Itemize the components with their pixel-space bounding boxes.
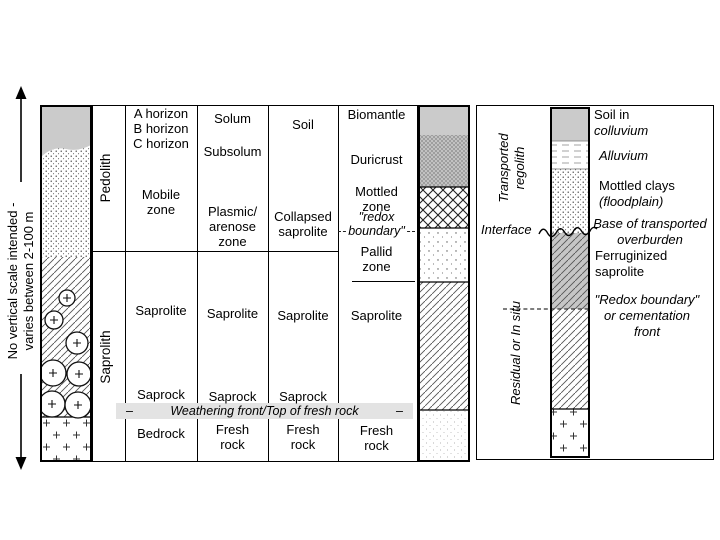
cell-mobile-zone: Mobile zone — [125, 187, 197, 217]
cell-fresh-rock-4: Fresh rock — [338, 423, 415, 453]
weathering-profile-table: Pedolith Saprolith A horizon B horizon C… — [40, 105, 470, 462]
residual-in-situ-label: Residual or In situ — [508, 278, 524, 428]
a-horizon: A horizon — [125, 106, 197, 121]
scale-note-line1: No vertical scale intended - — [5, 176, 21, 386]
band-dash-right: – — [396, 404, 403, 418]
middle-strat-column-graphic — [418, 105, 470, 462]
cell-subsolum: Subsolum — [197, 144, 268, 159]
weathering-front-label: Weathering front/Top of fresh rock — [170, 404, 358, 418]
cell-duricrust: Duricrust — [338, 152, 415, 167]
label-mottled-clays: Mottled clays (floodplain) — [599, 178, 675, 210]
cell-collapsed-saprolite: Collapsed saprolite — [268, 209, 338, 239]
pedolith-saprolith-divider — [92, 251, 338, 252]
cell-bedrock: Bedrock — [125, 426, 197, 441]
cell-soil: Soil — [268, 117, 338, 132]
cell-plasmic-zone: Plasmic/ arenose zone — [197, 204, 268, 249]
cell-horizons: A horizon B horizon C horizon — [125, 106, 197, 151]
cell-fresh-rock-2: Fresh rock — [197, 422, 268, 452]
interface-label: Interface — [481, 222, 543, 238]
vertical-scale-note: No vertical scale intended - varies betw… — [5, 176, 37, 386]
cell-pallid-zone: Pallid zone — [338, 244, 415, 274]
transported-regolith-panel: Transported regolith Residual or In situ… — [476, 105, 714, 460]
scale-note-line2: varies between 2-100 m — [21, 176, 37, 386]
label-ferruginized-saprolite: Ferruginized saprolite — [595, 248, 667, 280]
band-dash-left: – — [126, 404, 133, 418]
left-strat-column-graphic — [40, 105, 92, 462]
phase-label-pedolith: Pedolith — [98, 128, 118, 228]
weathering-front-band: – Weathering front/Top of fresh rock – — [116, 403, 413, 419]
cell-biomantle: Biomantle — [338, 107, 415, 122]
label-redox-boundary-cementation: "Redox boundary" or cementation front — [585, 292, 709, 340]
cell-saprolite-1: Saprolite — [125, 303, 197, 318]
label-base-of-transported: Base of transported overburden — [587, 216, 713, 248]
label-soil-in-colluvium: Soil in colluvium — [594, 107, 648, 139]
cell-solum: Solum — [197, 111, 268, 126]
pallid-zone-underline — [352, 281, 415, 282]
label-alluvium: Alluvium — [599, 148, 648, 164]
cell-saprock-2: Saprock — [197, 389, 268, 404]
transported-regolith-label: Transported regolith — [496, 113, 528, 223]
cell-saprolite-3: Saprolite — [268, 308, 338, 323]
cell-saprock-3: Saprock — [268, 389, 338, 404]
cell-fresh-rock-3: Fresh rock — [268, 422, 338, 452]
cell-redox-boundary: "redox boundary" — [338, 211, 415, 238]
cell-saprolite-2: Saprolite — [197, 306, 268, 321]
c-horizon: C horizon — [125, 136, 197, 151]
regolith-terminology-diagram: No vertical scale intended - varies betw… — [0, 0, 720, 540]
b-horizon: B horizon — [125, 121, 197, 136]
phase-label-saprolith: Saprolith — [98, 307, 118, 407]
cell-saprolite-4: Saprolite — [338, 308, 415, 323]
cell-saprock-1: Saprock — [125, 387, 197, 402]
